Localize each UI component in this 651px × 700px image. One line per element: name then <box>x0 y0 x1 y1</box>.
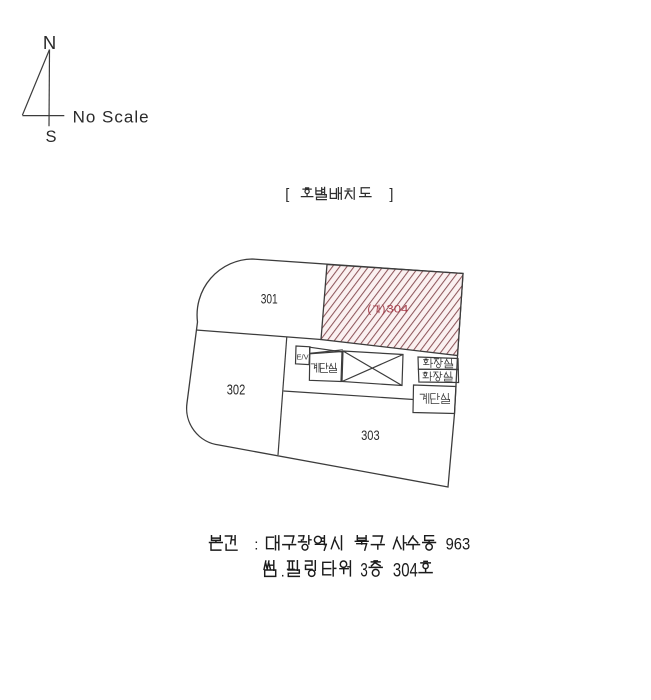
svg-text:302: 302 <box>227 381 246 398</box>
svg-text:(: ( <box>367 303 371 315</box>
svg-text:304: 304 <box>393 560 418 581</box>
svg-text:963: 963 <box>446 535 471 553</box>
svg-text:N: N <box>43 32 56 53</box>
svg-text:[: [ <box>285 187 289 203</box>
svg-text:301: 301 <box>261 292 278 307</box>
svg-text:304: 304 <box>386 303 408 315</box>
svg-text:]: ] <box>389 187 393 203</box>
svg-text:E/V: E/V <box>297 353 309 362</box>
svg-text:): ) <box>382 303 386 315</box>
svg-text:No Scale: No Scale <box>73 107 150 126</box>
svg-text:S: S <box>45 128 56 146</box>
svg-text::: : <box>254 537 258 554</box>
svg-text:303: 303 <box>361 427 380 443</box>
svg-text:3: 3 <box>360 560 367 581</box>
svg-text:.: . <box>281 563 285 580</box>
